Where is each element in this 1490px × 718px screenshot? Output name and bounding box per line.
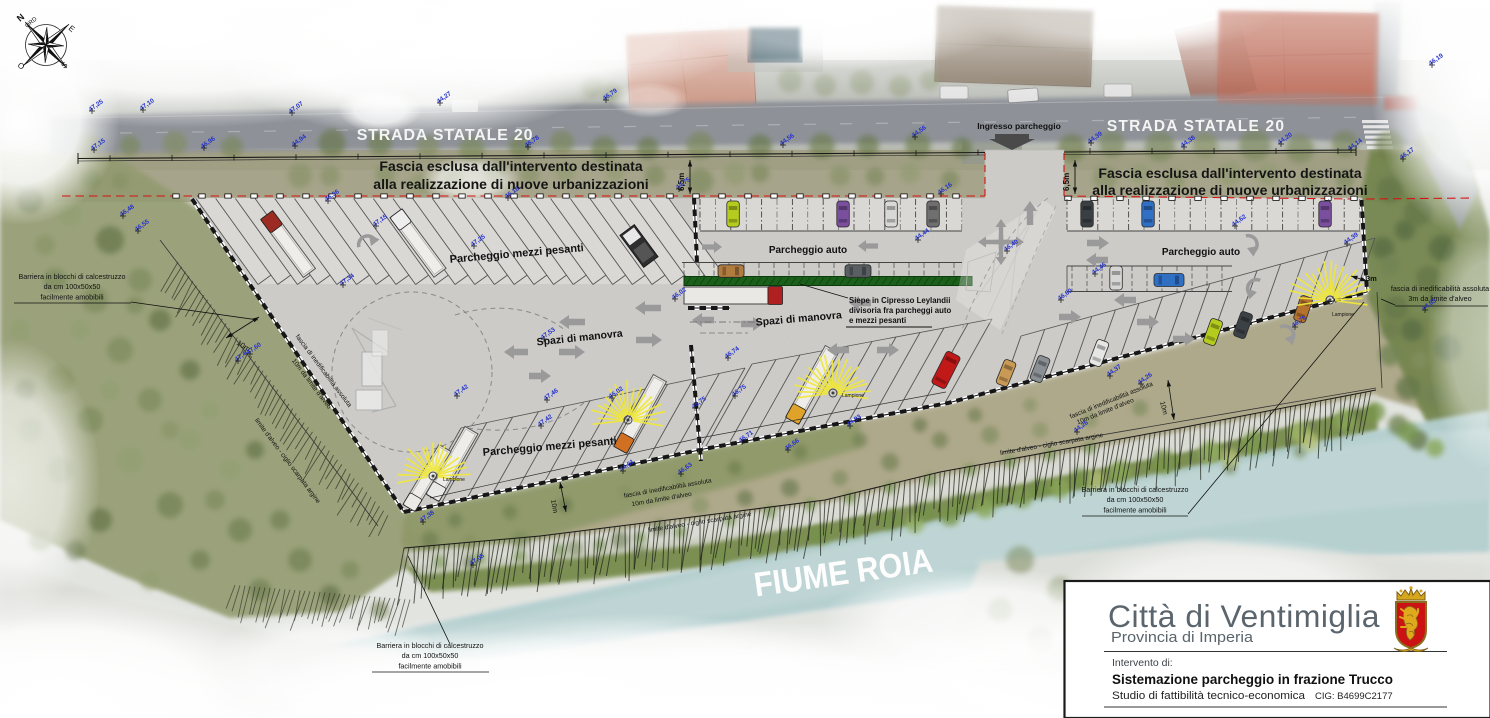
svg-text:da cm 100x50x50: da cm 100x50x50 (1107, 495, 1164, 504)
svg-text:Ingresso parcheggio: Ingresso parcheggio (977, 121, 1061, 131)
svg-text:6,5m: 6,5m (1062, 173, 1071, 191)
svg-text:3m: 3m (1366, 274, 1377, 283)
svg-text:Sistemazione parcheggio in fra: Sistemazione parcheggio in frazione Truc… (1112, 672, 1393, 687)
svg-text:facilmente amobibili: facilmente amobibili (40, 292, 104, 301)
svg-text:facilmente amobibili: facilmente amobibili (1103, 505, 1167, 514)
svg-text:divisoria fra parcheggi auto: divisoria fra parcheggi auto (849, 306, 951, 315)
svg-text:Intervento di:: Intervento di: (1112, 657, 1173, 669)
svg-text:Barriera in blocchi di calcest: Barriera in blocchi di calcestruzzo (1081, 485, 1188, 494)
svg-text:e mezzi pesanti: e mezzi pesanti (849, 316, 906, 325)
svg-text:Provincia di Imperia: Provincia di Imperia (1111, 630, 1254, 646)
svg-text:3m da limite d'alveo: 3m da limite d'alveo (1408, 294, 1471, 303)
svg-text:da cm 100x50x50: da cm 100x50x50 (44, 282, 101, 291)
svg-text:Città di Ventimiglia: Città di Ventimiglia (1108, 598, 1380, 634)
svg-text:Lampione: Lampione (1332, 312, 1354, 318)
svg-text:STRADA STATALE 20: STRADA STATALE 20 (1107, 118, 1285, 135)
svg-text:Fascia esclusa dall'intervento: Fascia esclusa dall'intervento destinata (379, 158, 642, 174)
svg-text:Parcheggio auto: Parcheggio auto (1162, 247, 1240, 258)
svg-text:CIG: B4699C2177: CIG: B4699C2177 (1315, 691, 1393, 702)
svg-text:fascia di inedificabilità asso: fascia di inedificabilità assoluta (1391, 284, 1489, 293)
svg-text:Siepe in Cipresso Leylandii: Siepe in Cipresso Leylandii (849, 296, 950, 305)
svg-text:Lampione: Lampione (842, 393, 864, 399)
svg-text:Studio di fattibilità tecnico-: Studio di fattibilità tecnico-economica (1112, 690, 1306, 702)
svg-text:da cm 100x50x50: da cm 100x50x50 (402, 651, 459, 660)
svg-text:STRADA STATALE 20: STRADA STATALE 20 (357, 127, 534, 144)
svg-text:Barriera in blocchi di calcest: Barriera in blocchi di calcestruzzo (18, 272, 125, 281)
svg-text:alla realizzazione di nuove ur: alla realizzazione di nuove urbanizzazio… (1092, 182, 1367, 198)
svg-text:Fascia esclusa dall'intervento: Fascia esclusa dall'intervento destinata (1098, 165, 1361, 181)
svg-text:Barriera in blocchi di calcest: Barriera in blocchi di calcestruzzo (376, 641, 483, 650)
svg-text:Parcheggio auto: Parcheggio auto (769, 245, 847, 256)
svg-text:facilmente amobibili: facilmente amobibili (398, 661, 462, 670)
svg-text:Lampione: Lampione (443, 477, 465, 483)
